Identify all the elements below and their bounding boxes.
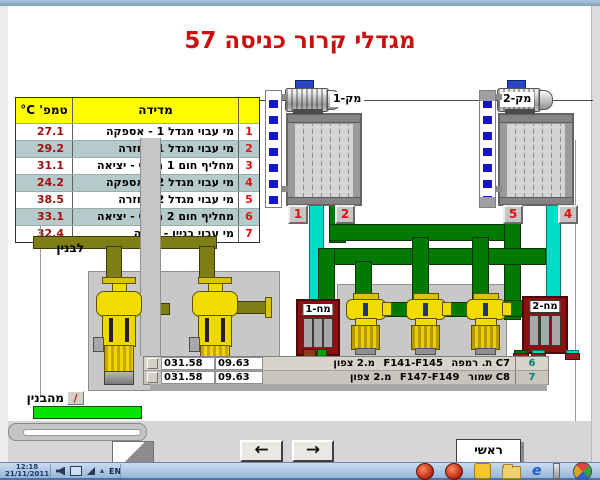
pump-column: [198, 315, 232, 347]
tower-fill-media: [507, 124, 565, 198]
tower-2-label: מק-2: [500, 92, 534, 107]
row-number: 1: [239, 124, 259, 140]
table-header-row: טמפ' C° מדידה: [16, 98, 259, 123]
taskbar-clock[interactable]: 12:18 21/11/2011: [5, 464, 49, 478]
pipe-tag-4: 4: [558, 205, 578, 224]
flow-readout-panel: 031.58 09.63 C7 ת. רמפה F141-F145 מ.2 צפ…: [143, 356, 549, 385]
valve-status-button[interactable]: /: [67, 391, 84, 405]
tower-basin: [500, 197, 572, 204]
strip-connector: [496, 186, 502, 192]
main-screen-button[interactable]: ראשי: [456, 439, 521, 463]
internet-explorer-icon[interactable]: e: [532, 464, 542, 478]
heat-exchanger-slats: [529, 315, 561, 346]
unit-name: C7 ת. רמפה: [451, 358, 510, 369]
pipe-green-riser-b: [412, 237, 429, 299]
condenser-pump-3[interactable]: [466, 293, 506, 355]
pipe-end-cap: [565, 353, 580, 360]
from-building-label: מהבנין: [10, 391, 64, 405]
left-arrow-icon: ←: [254, 440, 268, 460]
checkbox[interactable]: [147, 358, 158, 369]
table-row: 27.1 מי עבוי מגדל 1 - אספקה 1: [16, 123, 259, 140]
pipe-tag-2: 2: [335, 205, 355, 224]
temp-value: 31.1: [16, 158, 73, 174]
tower-top: [500, 115, 572, 123]
tray-expand-icon[interactable]: ▴: [100, 467, 104, 475]
return-flow-status-bar: [33, 406, 142, 419]
heat-exchanger-2-label: מח-2: [529, 300, 560, 313]
strip-end-block: [480, 197, 495, 207]
slider-widget-icon[interactable]: [553, 463, 560, 479]
location: מ.2 צפון: [333, 358, 374, 369]
fancoil-range: F141-F145: [383, 358, 443, 369]
flow-value: 031.58: [161, 371, 215, 384]
page-title: מגדלי קרור כניסה 57: [100, 28, 500, 54]
scada-screen: מגדלי קרור כניסה 57 טמפ' C° מדידה 27.1 מ…: [0, 0, 600, 480]
pump-motor: [471, 325, 500, 350]
temp-value: 27.1: [16, 124, 73, 140]
row-number: 7: [239, 226, 259, 242]
tower-top: [288, 115, 360, 123]
row-number: 5: [239, 192, 259, 208]
strip-connector: [496, 94, 502, 100]
pump-motor: [351, 325, 380, 350]
motor-base: [293, 109, 323, 114]
motor-end-cap: [539, 90, 553, 110]
strip-end-block: [480, 91, 495, 101]
row-number: 3: [239, 158, 259, 174]
pump-outlet: [502, 302, 512, 316]
level-blocks: [269, 94, 278, 204]
strip-connector: [282, 94, 288, 100]
pump-base: [475, 348, 496, 355]
row-number: 2: [239, 141, 259, 157]
table-row: 31.1 מחליף חום 1 משני - יציאה 3: [16, 157, 259, 174]
taskbar-separator: [120, 464, 121, 478]
table-row: 38.5 מי עבוי מגדל 2 - חזרה 5: [16, 191, 259, 208]
scada-app-icon-2[interactable]: [445, 463, 463, 480]
pump-column: [102, 315, 136, 347]
pipe-tag-1: 1: [288, 205, 308, 224]
pressure-value: 09.63: [215, 357, 263, 370]
pressure-value: 09.63: [215, 371, 263, 384]
temperature-table: טמפ' C° מדידה 27.1 מי עבוי מגדל 1 - אספק…: [15, 97, 260, 243]
circuit-description: C7 ת. רמפה F141-F145 מ.2 צפון: [263, 357, 515, 370]
pump-motor: [411, 325, 440, 350]
heat-exchanger-1[interactable]: מח-1: [296, 299, 340, 356]
pump-outlet: [442, 302, 452, 316]
temp-value: 29.2: [16, 141, 73, 157]
condenser-pump-1[interactable]: [346, 293, 386, 355]
number-column-header: [239, 98, 259, 123]
display-icon[interactable]: [70, 466, 82, 476]
measurement-column-header: מדידה: [73, 98, 239, 123]
pump2-outlet-pipe: [235, 301, 269, 314]
heat-exchanger-slats: [303, 318, 333, 348]
tower-fill-media: [295, 124, 353, 198]
level-indicator-1: [265, 90, 282, 208]
flow-value: 031.58: [161, 357, 215, 370]
circuit-description: C8 שמור F147-F149 מ.2 צפון: [263, 371, 515, 384]
cooling-tower-2[interactable]: [498, 113, 574, 206]
location: מ.2 צפון: [350, 372, 391, 383]
row-number: 4: [239, 175, 259, 191]
table-row: 33.1 מחליף חום 2 משני - יציאה 6: [16, 208, 259, 225]
pump-outlet: [382, 302, 392, 316]
level-indicator-2: [479, 90, 496, 208]
heat-exchanger-1-label: מח-1: [302, 303, 333, 316]
strip-connector: [282, 186, 288, 192]
tower-1-label: מק-1: [330, 92, 364, 107]
taskbar-separator: [50, 464, 51, 478]
forward-button[interactable]: →: [292, 440, 334, 462]
back-button[interactable]: ←: [240, 440, 283, 462]
heat-exchanger-2[interactable]: מח-2: [522, 296, 568, 354]
temp-value: 24.2: [16, 175, 73, 191]
clock-date: 21/11/2011: [5, 471, 49, 478]
network-icon[interactable]: [87, 467, 95, 475]
to-building-label: לבנין: [40, 241, 84, 255]
messenger-app-icon[interactable]: [474, 463, 491, 479]
pipe-green-riser-c: [472, 237, 489, 299]
fancoil-range: F147-F149: [400, 372, 460, 383]
building-pump-1[interactable]: [96, 277, 142, 387]
volume-icon[interactable]: [56, 467, 65, 476]
pump-volute: [466, 299, 506, 320]
folder-icon[interactable]: [502, 466, 521, 479]
horizontal-gauge[interactable]: [8, 423, 147, 441]
pump-volute: [192, 291, 238, 317]
table-row: 29.2 מי עבוי מגדל 1 - חזרה 2: [16, 140, 259, 157]
pump-junction-box: [189, 337, 200, 352]
pipe-tag-5: 5: [503, 205, 523, 224]
right-border-strip: [591, 6, 600, 462]
pump-base: [355, 348, 376, 355]
motor-base: [505, 109, 535, 114]
readout-row: 031.58 09.63 C7 ת. רמפה F141-F145 מ.2 צפ…: [144, 357, 548, 370]
outlet-flange: [265, 297, 272, 318]
pump-volute: [406, 299, 446, 320]
table-row: 24.2 מי עבוי מגדל 2 - אספקה 4: [16, 174, 259, 191]
pump-base: [415, 348, 436, 355]
page-corner-button[interactable]: [112, 441, 154, 464]
row-number: 6: [239, 209, 259, 225]
level-blocks: [483, 94, 492, 204]
system-tray: ▴ EN: [56, 465, 121, 477]
taskbar-app-icons: e: [416, 463, 560, 479]
tower-basin: [288, 197, 360, 204]
gauge-level: [23, 429, 141, 436]
structural-column: [140, 138, 161, 356]
panel-shadow: [150, 384, 547, 391]
start-button[interactable]: [573, 462, 592, 480]
temp-column-header: טמפ' C°: [16, 98, 73, 123]
readout-row: 031.58 09.63 C8 שמור F147-F149 מ.2 צפון …: [144, 370, 548, 384]
pipe-green-header-lower: [318, 248, 546, 265]
pump-motor: [104, 345, 134, 373]
condenser-pump-2[interactable]: [406, 293, 446, 355]
pump-base: [104, 371, 134, 385]
right-boundary-line: [575, 140, 576, 421]
pump-volute: [96, 291, 142, 317]
pump-volute: [346, 299, 386, 320]
cooling-tower-1[interactable]: [286, 113, 362, 206]
checkbox[interactable]: [147, 372, 158, 383]
temp-value: 38.5: [16, 192, 73, 208]
unit-name: C8 שמור: [468, 372, 510, 383]
pump-junction-box: [93, 337, 104, 352]
scada-app-icon-1[interactable]: [416, 463, 434, 480]
circuit-number: 6: [515, 357, 548, 370]
right-arrow-icon: →: [306, 440, 320, 460]
circuit-number: 7: [515, 371, 548, 384]
temp-value: 33.1: [16, 209, 73, 225]
